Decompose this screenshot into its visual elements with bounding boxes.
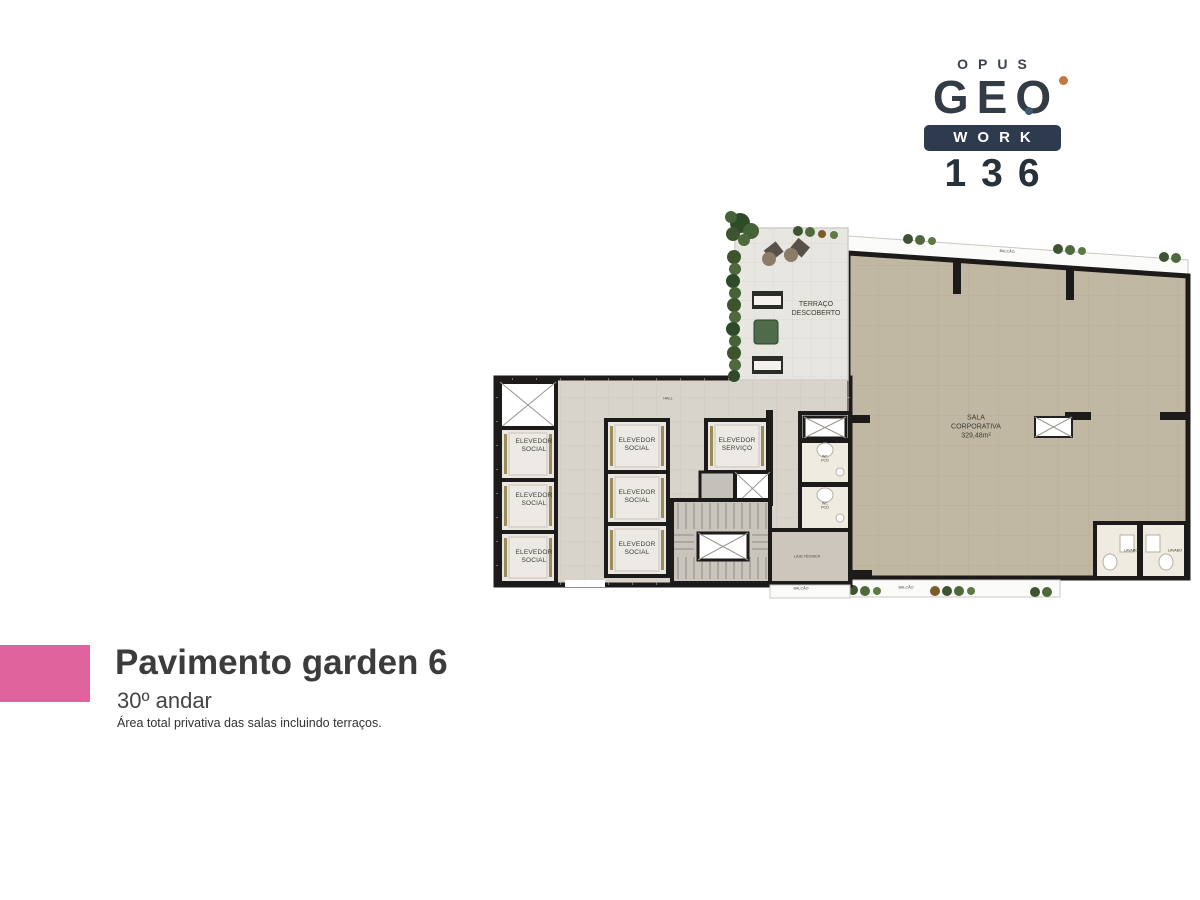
bench-icon [752,356,783,374]
column-stub [1066,270,1074,300]
sink-icon [1146,535,1160,552]
shaft-x [500,382,556,428]
wall-stub [1160,412,1186,420]
bench-icon [752,291,783,309]
label-elevator-social: ELEVEDOR SOCIAL [618,437,655,453]
floor-color-swatch [0,645,90,702]
floor-plan: HALL ELEVEDOR SOCIAL ELEVEDOR SOCIAL ELE… [488,205,1200,615]
toilet-icon [1159,554,1173,570]
terrace-area [725,211,848,382]
page-subtitle: 30º andar [117,688,212,714]
label-elevator-service: ELEVEDOR SERVIÇO [718,437,755,453]
wall-stub [850,570,872,578]
page-title: Pavimento garden 6 [115,643,448,683]
shaft-x [1035,417,1072,437]
label-wc-pcd: WC PCD [821,502,829,510]
label-hall: HALL [663,397,672,401]
column-stub [953,262,961,294]
logo-name-text: GEO [912,74,1072,120]
sink-icon [836,468,844,476]
toilet-icon [1103,554,1117,570]
door-opening [565,580,605,587]
floor-plan-graphic [488,205,1200,615]
sink-icon [836,514,844,522]
label-wc-pcd: WC PCD [821,455,829,463]
label-sala-corporativa: SALA CORPORATIVA 329,48m² [951,413,1001,440]
hedge [726,250,741,382]
label-elevator-social: ELEVEDOR SOCIAL [515,549,552,565]
geo-orange-dot-icon [1059,76,1068,85]
logo-brand-text: OPUS [912,56,1072,72]
logo-opus-geo-work-136: OPUS GEO WORK 136 [912,56,1072,193]
table-icon [754,320,778,344]
label-elevator-social: ELEVEDOR SOCIAL [515,438,552,454]
stairs [672,500,770,583]
brochure-page: OPUS GEO WORK 136 [0,0,1200,900]
label-lavabo: LAVABO [1168,549,1182,553]
wc-rooms [800,413,850,532]
label-balcao: BALCÃO [898,586,913,590]
label-lavabo: LAVABO [1124,549,1138,553]
shaft-x [804,417,846,438]
label-laje-tecnica: LAJE TÉCNICA [794,555,820,559]
label-elevator-social: ELEVEDOR SOCIAL [618,541,655,557]
balcony-strip-bottom [848,580,1060,597]
logo-number: 136 [912,154,1072,193]
label-elevator-social: ELEVEDOR SOCIAL [515,492,552,508]
balcony-strip-bottom-left [770,585,850,598]
page-note: Área total privativa das salas incluindo… [117,716,382,730]
logo-work-badge: WORK [924,125,1061,151]
toilet-icon [817,488,833,502]
label-balcao: BALCÃO [793,587,808,591]
geo-blue-dot-icon [1025,107,1033,115]
stair-landing [698,533,748,560]
label-terrace: TERRAÇO DESCOBERTO [792,300,841,318]
logo-geo-letters: GEO [933,71,1059,123]
label-elevator-social: ELEVEDOR SOCIAL [618,489,655,505]
